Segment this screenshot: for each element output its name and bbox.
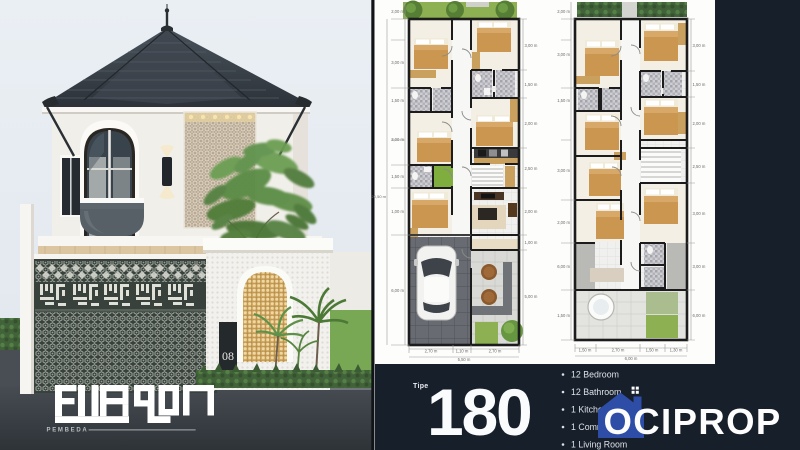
svg-text:2,00 m: 2,00 m — [557, 220, 570, 225]
svg-text:2,70 m: 2,70 m — [612, 348, 625, 353]
svg-text:12 Bedroom: 12 Bedroom — [571, 370, 619, 380]
svg-text:1,50 m: 1,50 m — [646, 348, 659, 353]
svg-text:2,70 m: 2,70 m — [425, 349, 438, 354]
svg-text:3,00 m: 3,00 m — [391, 60, 404, 65]
svg-text:1,50 m: 1,50 m — [525, 82, 538, 87]
svg-text:5,00 m: 5,00 m — [525, 294, 538, 299]
svg-text:1,50 m: 1,50 m — [391, 98, 404, 103]
svg-text:3,00 m: 3,00 m — [693, 43, 706, 48]
svg-text:2,00 m: 2,00 m — [391, 9, 404, 14]
svg-text:1,50 m: 1,50 m — [557, 313, 570, 318]
svg-text:1,00 m: 1,00 m — [525, 240, 538, 245]
svg-text:1,00 m: 1,00 m — [391, 209, 404, 214]
svg-text:180: 180 — [427, 375, 531, 449]
svg-text:3,00 m: 3,00 m — [693, 211, 706, 216]
svg-text:2,50 m: 2,50 m — [525, 166, 538, 171]
svg-text:2,00 m: 2,00 m — [693, 121, 706, 126]
svg-text:1,50 m: 1,50 m — [693, 82, 706, 87]
svg-text:2,00 m: 2,00 m — [525, 209, 538, 214]
svg-text:6,00 m: 6,00 m — [693, 313, 706, 318]
svg-text:1,10 m: 1,10 m — [456, 349, 469, 354]
svg-text:1,50 m: 1,50 m — [557, 98, 570, 103]
svg-text:3,00 m: 3,00 m — [525, 43, 538, 48]
svg-text:08: 08 — [222, 349, 234, 363]
svg-text:2,00 m: 2,00 m — [525, 121, 538, 126]
svg-text:1,50 m: 1,50 m — [391, 174, 404, 179]
svg-text:20,50 m: 20,50 m — [372, 194, 387, 199]
svg-text:3,00 m: 3,00 m — [557, 52, 570, 57]
svg-text:6,00 m: 6,00 m — [391, 288, 404, 293]
svg-text:1,50 m: 1,50 m — [579, 348, 592, 353]
svg-text:2,70 m: 2,70 m — [489, 349, 502, 354]
svg-text:3,00 m: 3,00 m — [391, 137, 404, 142]
svg-text:1,30 m: 1,30 m — [670, 348, 683, 353]
svg-text:OCIPROP: OCIPROP — [604, 401, 782, 442]
svg-text:2,00 m: 2,00 m — [557, 9, 570, 14]
svg-text:12 Bathroom: 12 Bathroom — [571, 387, 621, 397]
svg-text:PEMBEDA: PEMBEDA — [47, 428, 89, 434]
svg-text:3,00 m: 3,00 m — [693, 264, 706, 269]
svg-text:5,50 m: 5,50 m — [458, 357, 471, 362]
svg-text:3,00 m: 3,00 m — [557, 168, 570, 173]
svg-text:6,00 m: 6,00 m — [625, 356, 638, 361]
svg-text:6,00 m: 6,00 m — [557, 264, 570, 269]
svg-text:2,50 m: 2,50 m — [693, 164, 706, 169]
